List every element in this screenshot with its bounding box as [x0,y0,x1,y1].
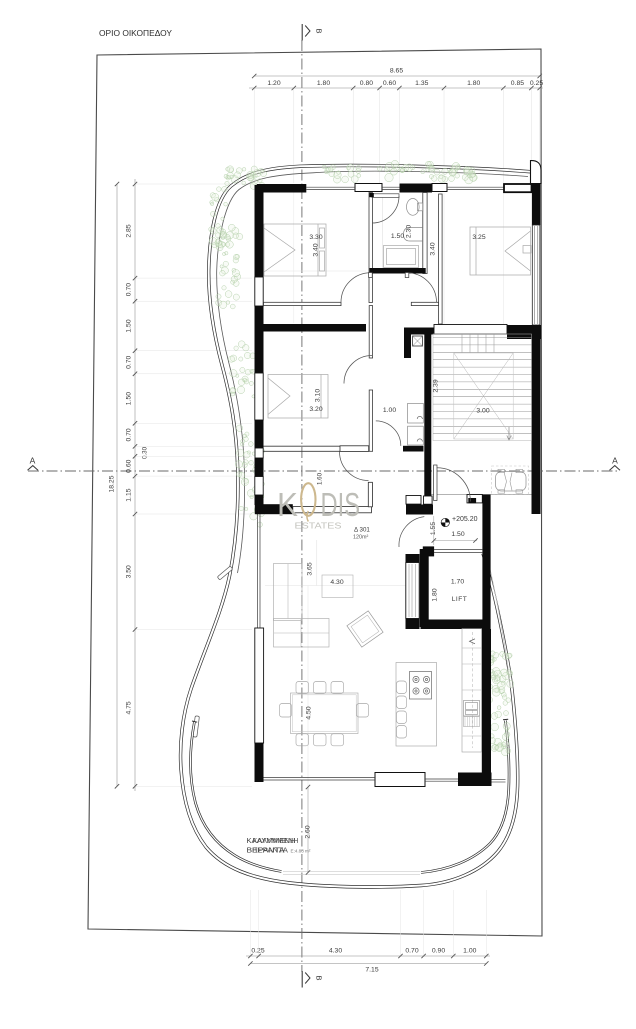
svg-text:2.85: 2.85 [126,224,133,237]
svg-text:ΟΡΙΟ ΟΙΚΟΠΕΔΟΥ: ΟΡΙΟ ΟΙΚΟΠΕΔΟΥ [99,29,173,38]
svg-text:1.35: 1.35 [415,80,428,87]
svg-text:+205.20: +205.20 [452,516,478,523]
svg-text:0.70: 0.70 [126,428,133,441]
svg-text:8.65: 8.65 [390,68,403,75]
svg-text:0.90: 0.90 [432,948,445,955]
svg-text:1.15: 1.15 [126,488,133,501]
svg-text:3.00: 3.00 [476,408,489,415]
svg-text:1.20: 1.20 [267,80,280,87]
svg-text:3.40: 3.40 [430,242,437,255]
svg-text:2.60: 2.60 [305,825,312,838]
svg-text:3.50: 3.50 [126,565,133,578]
svg-text:0.85: 0.85 [511,80,524,87]
svg-text:1.00: 1.00 [463,948,476,955]
svg-text:Β: Β [315,975,324,980]
svg-text:1.00: 1.00 [383,407,396,414]
svg-text:7.15: 7.15 [365,967,378,974]
svg-text:Α: Α [612,456,618,466]
svg-text:0.30: 0.30 [142,446,149,459]
svg-text:0.25: 0.25 [530,80,543,87]
svg-text:1.50: 1.50 [126,319,133,332]
svg-text:3.40: 3.40 [313,243,320,256]
svg-text:1.70: 1.70 [451,579,464,586]
svg-text:0.60: 0.60 [126,459,133,472]
svg-text:3.10: 3.10 [315,389,322,402]
svg-text:Ε:4.88 m²: Ε:4.88 m² [291,849,311,854]
svg-text:K: K [277,486,298,523]
svg-text:0.70: 0.70 [126,355,133,368]
svg-text:3.30: 3.30 [309,234,322,241]
svg-text:4.30: 4.30 [330,579,343,586]
svg-text:1.80: 1.80 [432,588,439,601]
svg-text:LIFT: LIFT [452,596,468,603]
svg-text:120m²: 120m² [353,535,368,541]
svg-text:0.25: 0.25 [251,948,264,955]
svg-text:Α: Α [30,456,36,466]
svg-text:18.25: 18.25 [109,475,116,492]
svg-text:3.20: 3.20 [309,406,322,413]
svg-text:1.50: 1.50 [451,531,464,538]
svg-text:0.70: 0.70 [405,948,418,955]
svg-text:0.60: 0.60 [383,80,396,87]
svg-text:3.65: 3.65 [307,562,314,575]
svg-text:0.80: 0.80 [360,80,373,87]
svg-text:4.75: 4.75 [126,701,133,714]
svg-text:3.25: 3.25 [472,234,485,241]
svg-text:0.70: 0.70 [126,283,133,296]
svg-text:1.50: 1.50 [391,233,404,240]
svg-text:2.39: 2.39 [433,379,440,392]
svg-text:ESTATES: ESTATES [295,521,342,531]
svg-text:1.80: 1.80 [317,80,330,87]
svg-text:DIS: DIS [321,486,361,523]
svg-text:Δ 301: Δ 301 [354,527,370,534]
svg-text:1.80: 1.80 [467,80,480,87]
svg-text:4.50: 4.50 [306,706,313,719]
svg-text:ΒΕΡΑΝΤΑ: ΒΕΡΑΝΤΑ [252,846,288,855]
svg-text:ΚΑΛΥΜΜΕΝΗ: ΚΑΛΥΜΜΕΝΗ [253,836,299,845]
svg-text:1.55: 1.55 [430,522,437,535]
svg-text:1.50: 1.50 [126,392,133,405]
svg-text:2.30: 2.30 [406,225,413,238]
svg-text:1.60: 1.60 [317,472,324,485]
svg-text:Β: Β [315,28,324,33]
svg-text:4.30: 4.30 [329,948,342,955]
